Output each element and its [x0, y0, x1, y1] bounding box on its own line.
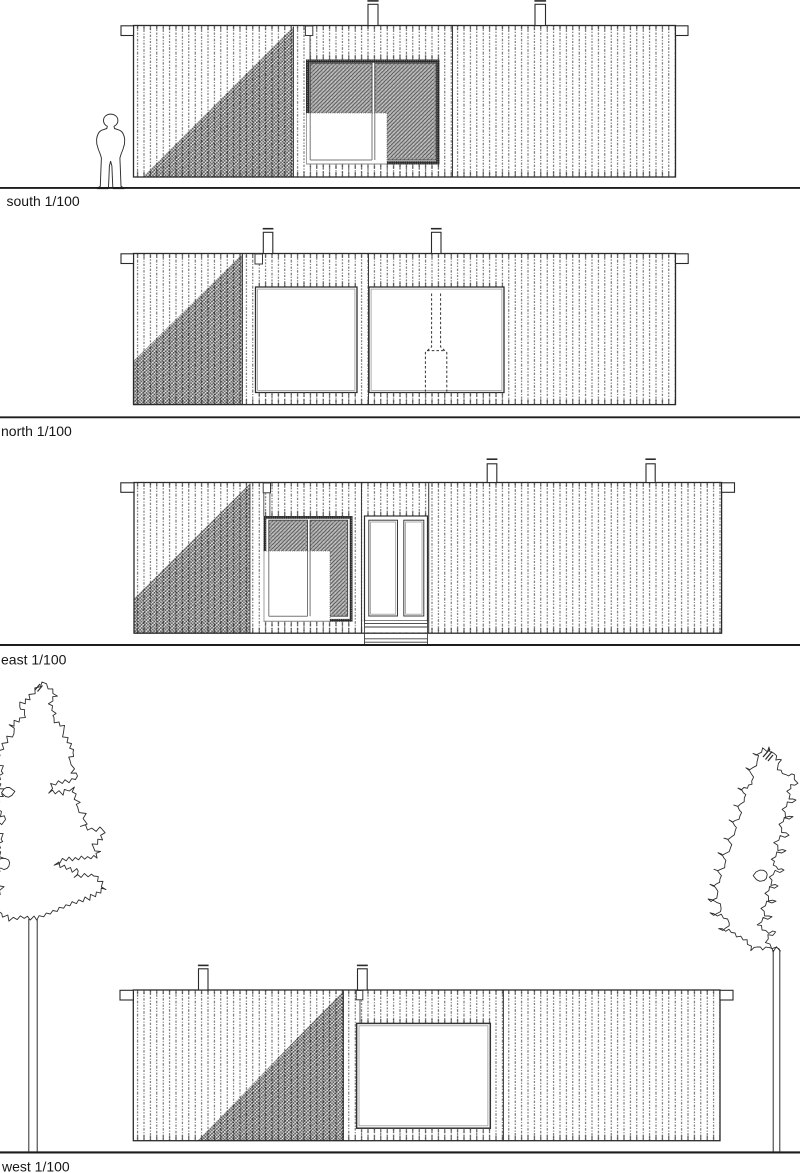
svg-text:west 1/100: west 1/100 [1, 1158, 70, 1173]
svg-text:east 1/100: east 1/100 [1, 652, 67, 668]
svg-text:south 1/100: south 1/100 [7, 193, 80, 209]
svg-text:north 1/100: north 1/100 [1, 423, 72, 439]
